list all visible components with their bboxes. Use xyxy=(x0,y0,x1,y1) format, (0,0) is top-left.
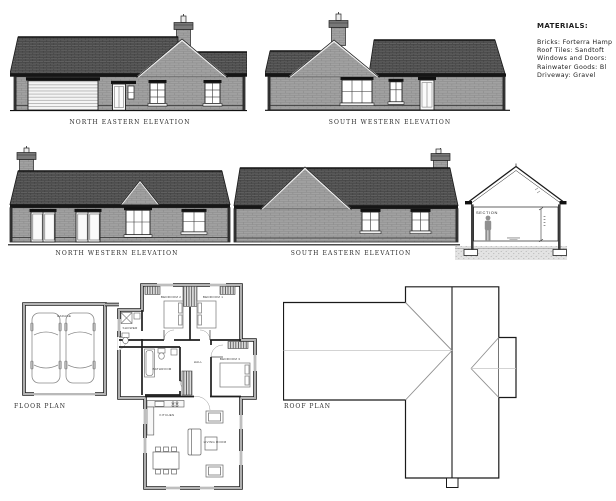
section-label: SECTION xyxy=(476,210,498,215)
caption-south-western-elevation: SOUTH WESTERN ELEVATION xyxy=(295,119,485,126)
caption-north-western-elevation: NORTH WESTERN ELEVATION xyxy=(22,250,212,257)
roof-bump-outline xyxy=(499,338,516,398)
materials-note: MATERIALS: Bricks: Forterra Hamp Roof Ti… xyxy=(537,22,616,80)
section-drawing: SECTION xyxy=(455,160,567,262)
fascia xyxy=(10,205,230,208)
window xyxy=(340,77,374,106)
roof-outline xyxy=(284,287,499,478)
window xyxy=(148,80,167,106)
window xyxy=(360,209,381,234)
window xyxy=(410,209,431,234)
label-garage: GARAGE xyxy=(57,314,71,318)
label-bedroom1: BEDROOM 1 xyxy=(203,295,223,299)
french-doors xyxy=(75,209,102,242)
materials-line: Roof Tiles: Sandtoft xyxy=(537,47,616,55)
label-bedroom2: BEDROOM 2 xyxy=(161,295,181,299)
elevation-nw-drawing xyxy=(8,145,232,257)
elevation-south-western xyxy=(265,12,510,125)
roof-plan-svg xyxy=(283,286,517,494)
chimney xyxy=(329,12,348,46)
garage-door xyxy=(26,77,100,110)
materials-line: Driveway: Gravel xyxy=(537,72,616,80)
label-living: LIVING ROOM xyxy=(204,440,227,444)
french-doors xyxy=(30,209,57,242)
roof xyxy=(10,171,230,205)
label-hall: HALL xyxy=(194,360,203,364)
elevation-north-eastern xyxy=(10,14,247,126)
caption-floor-plan: FLOOR PLAN xyxy=(14,403,66,410)
chimney-plan xyxy=(447,478,459,488)
caption-north-eastern-elevation: NORTH EASTERN ELEVATION xyxy=(35,119,225,126)
floor-plan: GARAGE BEDROOM 2 BEDROOM 1 SHOWER BATHRO… xyxy=(14,283,264,500)
materials-line: Windows and Doors: xyxy=(537,55,616,63)
elevation-south-eastern xyxy=(232,148,460,260)
window xyxy=(181,209,207,235)
window xyxy=(388,79,404,105)
section-svg: SECTION xyxy=(455,160,567,262)
roof-plan xyxy=(283,286,517,494)
chimney xyxy=(17,146,36,175)
roof-structure xyxy=(467,164,565,204)
caption-roof-plan: ROOF PLAN xyxy=(284,403,331,410)
label-bathroom: BATHROOM xyxy=(152,367,171,371)
label-kitchen: KITCHEN xyxy=(160,413,175,417)
materials-line: Rainwater Goods: Bl xyxy=(537,64,616,72)
elevation-north-western xyxy=(8,145,232,257)
wall xyxy=(268,77,505,110)
label-shower: SHOWER xyxy=(123,326,139,330)
elevation-se-drawing xyxy=(232,148,460,260)
chimney xyxy=(431,148,450,171)
roof xyxy=(234,168,458,206)
window xyxy=(203,80,222,106)
window xyxy=(124,207,152,237)
floor-plan-svg: GARAGE BEDROOM 2 BEDROOM 1 SHOWER BATHRO… xyxy=(14,283,264,500)
back-door xyxy=(418,77,436,110)
materials-title: MATERIALS: xyxy=(537,22,616,30)
materials-line: Bricks: Forterra Hamp xyxy=(537,39,616,47)
label-bedroom3: BEDROOM 3 xyxy=(220,357,240,361)
caption-south-eastern-elevation: SOUTH EASTERN ELEVATION xyxy=(261,250,441,257)
elevation-ne-drawing xyxy=(10,14,247,126)
drawing-sheet: NORTH EASTERN ELEVATION xyxy=(0,0,616,501)
elevation-sw-drawing xyxy=(265,12,510,125)
